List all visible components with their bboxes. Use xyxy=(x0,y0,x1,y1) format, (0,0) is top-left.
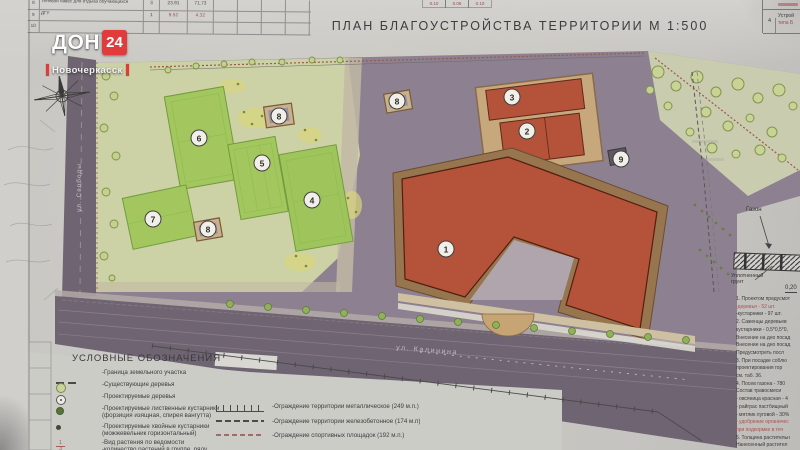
table-cell: 23.91 xyxy=(160,0,188,10)
legend-symbol-fence-metal xyxy=(216,405,264,412)
plan-marker-9: 9 xyxy=(613,151,630,168)
note-line: при подкормке в теч xyxy=(736,427,800,435)
note-line: см. таб. 36. xyxy=(736,373,800,381)
table-cell xyxy=(238,23,262,34)
street-label-svobody: ул. Свободы xyxy=(76,148,83,212)
legend-item-label: -Ограждение территории металлическое (24… xyxy=(272,404,419,411)
table-cell: 1 xyxy=(144,11,160,21)
plan-marker-1: 1 xyxy=(438,241,455,258)
legend-item-label: -Проектируемые деревья xyxy=(102,394,175,401)
corner-row-text-red: типа Б xyxy=(778,20,793,26)
note-line: -деревья - 52 шт. xyxy=(736,304,800,312)
tv-frame-site-plan-photo: ПЛАН БЛАГОУСТРОЙСТВА ТЕРРИТОРИИ М 1:500 … xyxy=(0,0,800,450)
legend-symbol-fence-sport xyxy=(216,434,264,436)
table-cell xyxy=(144,22,160,33)
legend-item-label2: (можжевельник горизонтальный) xyxy=(102,431,197,438)
legend-symbol-tree-ex xyxy=(56,383,66,393)
plan-marker-6: 6 xyxy=(191,130,208,147)
table-cell: 9 xyxy=(28,10,40,20)
detail-label-lawn: Газон xyxy=(746,207,762,213)
legend-block: УСЛОВНЫЕ ОБОЗНАЧЕНИЯ -Граница земельного… xyxy=(56,350,516,450)
table-cell: 3 xyxy=(144,0,160,10)
note-line: 4. Посев газона - 780 xyxy=(736,381,800,389)
table-cell xyxy=(286,0,310,11)
note-line: Внесение на дно посад xyxy=(736,335,800,343)
legend-title: УСЛОВНЫЕ ОБОЗНАЧЕНИЯ xyxy=(72,353,221,364)
detail-label-soil: Уплотненный грунт xyxy=(731,273,775,285)
table-cell xyxy=(214,12,238,22)
note-line: 5. Толщина растительн xyxy=(736,435,800,443)
note-line: 1. Проектом предусмот xyxy=(736,296,800,304)
table-cell xyxy=(214,0,238,11)
note-line: - удобрение органичес xyxy=(736,419,800,427)
corner-row-number: 4 xyxy=(764,18,776,33)
red-bar-icon xyxy=(126,64,129,76)
note-line: - мятлик луговой - 30% xyxy=(736,412,800,420)
legend-item-label2: (форзиция изящная, спирея вангутта) xyxy=(102,413,211,420)
detail-dimension: 0,20 xyxy=(785,285,797,293)
plan-marker-8: 8 xyxy=(200,221,217,238)
legend-item-label: -Граница земельного участка xyxy=(102,370,186,377)
table-cell xyxy=(160,22,188,33)
corner-table-row: 4 Устрой типа Б xyxy=(763,10,800,34)
mini-cell: 0.10 xyxy=(468,0,492,8)
notes-panel: 1. Проектом предусмот-деревья - 52 шт.-к… xyxy=(736,296,800,450)
legend-symbol-tree-pr xyxy=(56,395,66,405)
table-cell xyxy=(262,0,286,11)
table-cell: 9.52 xyxy=(160,11,188,21)
legend-symbol-shrub-l xyxy=(56,407,64,415)
table-cell xyxy=(238,0,262,11)
logo-don-text: ДОН xyxy=(52,31,100,55)
plan-marker-8: 8 xyxy=(389,93,406,110)
don24-logo: ДОН 24 xyxy=(52,30,127,55)
mini-value-cells: 0.100.060.10 xyxy=(422,0,491,8)
table-cell: 10 xyxy=(28,21,40,32)
legend-symbol-fence-concrete xyxy=(216,420,264,422)
plan-marker-8: 8 xyxy=(271,108,288,125)
note-line: кустарники - 0,5*0,5*0, xyxy=(736,327,800,335)
table-cell xyxy=(286,23,310,34)
logo-24-badge: 24 xyxy=(102,30,127,55)
note-line: -кустарники - 97 шт. xyxy=(736,311,800,319)
corner-table-row xyxy=(763,0,800,10)
legend-symbol-frac: 13 xyxy=(56,441,65,450)
table-cell: 4.32 xyxy=(188,11,214,21)
note-line: Внесение на дно посад xyxy=(736,342,800,350)
location-bug: Новочеркасск xyxy=(46,64,129,76)
note-line: Предусмотреть посл xyxy=(736,350,800,358)
table-cell xyxy=(262,12,286,22)
plan-marker-5: 5 xyxy=(254,155,271,172)
legend-item-label: -Существующие деревья xyxy=(102,382,174,389)
table-cell xyxy=(286,12,310,22)
note-line: - райграс пастбищный xyxy=(736,404,800,412)
location-label: Новочеркасск xyxy=(52,65,123,76)
note-line: - овсяница красная - 4 xyxy=(736,396,800,404)
table-cell xyxy=(188,22,214,33)
corner-table-fragment: 4 Устрой типа Б xyxy=(762,0,800,33)
plan-marker-7: 7 xyxy=(145,211,162,228)
corner-row-text: Устрой xyxy=(778,13,794,19)
red-bar-icon xyxy=(46,64,49,76)
table-cell: 71.73 xyxy=(188,0,214,11)
red-text-smudge xyxy=(778,3,798,6)
table-cell xyxy=(238,12,262,22)
note-line: проектирования гор xyxy=(736,365,800,373)
plan-marker-3: 3 xyxy=(504,89,521,106)
mini-cell: 0.10 xyxy=(422,0,446,8)
table-cell xyxy=(262,23,286,34)
legend-item-label: -Ограждение территории железобетонное (1… xyxy=(272,419,420,426)
note-line: 3. При посадке соблю xyxy=(736,358,800,366)
table-cell: ДГУ xyxy=(40,10,144,21)
legend-symbol-shrub-c xyxy=(56,425,61,430)
table-cell xyxy=(214,23,238,34)
note-line: 2. Саженцы деревьев xyxy=(736,319,800,327)
table-cell: Теневой навес для отдыха обучающихся xyxy=(40,0,144,10)
plan-marker-4: 4 xyxy=(304,192,321,209)
legend-item-label: -Ограждение спортивных площадок (192 м.п… xyxy=(272,433,404,440)
note-line: Нанесенный растител xyxy=(736,442,800,450)
note-line: Состав травосмеси xyxy=(736,388,800,396)
table-cell: 8 xyxy=(28,0,40,9)
mini-cell: 0.06 xyxy=(445,0,469,8)
plan-marker-2: 2 xyxy=(519,123,536,140)
page-title: ПЛАН БЛАГОУСТРОЙСТВА ТЕРРИТОРИИ М 1:500 xyxy=(330,19,710,33)
